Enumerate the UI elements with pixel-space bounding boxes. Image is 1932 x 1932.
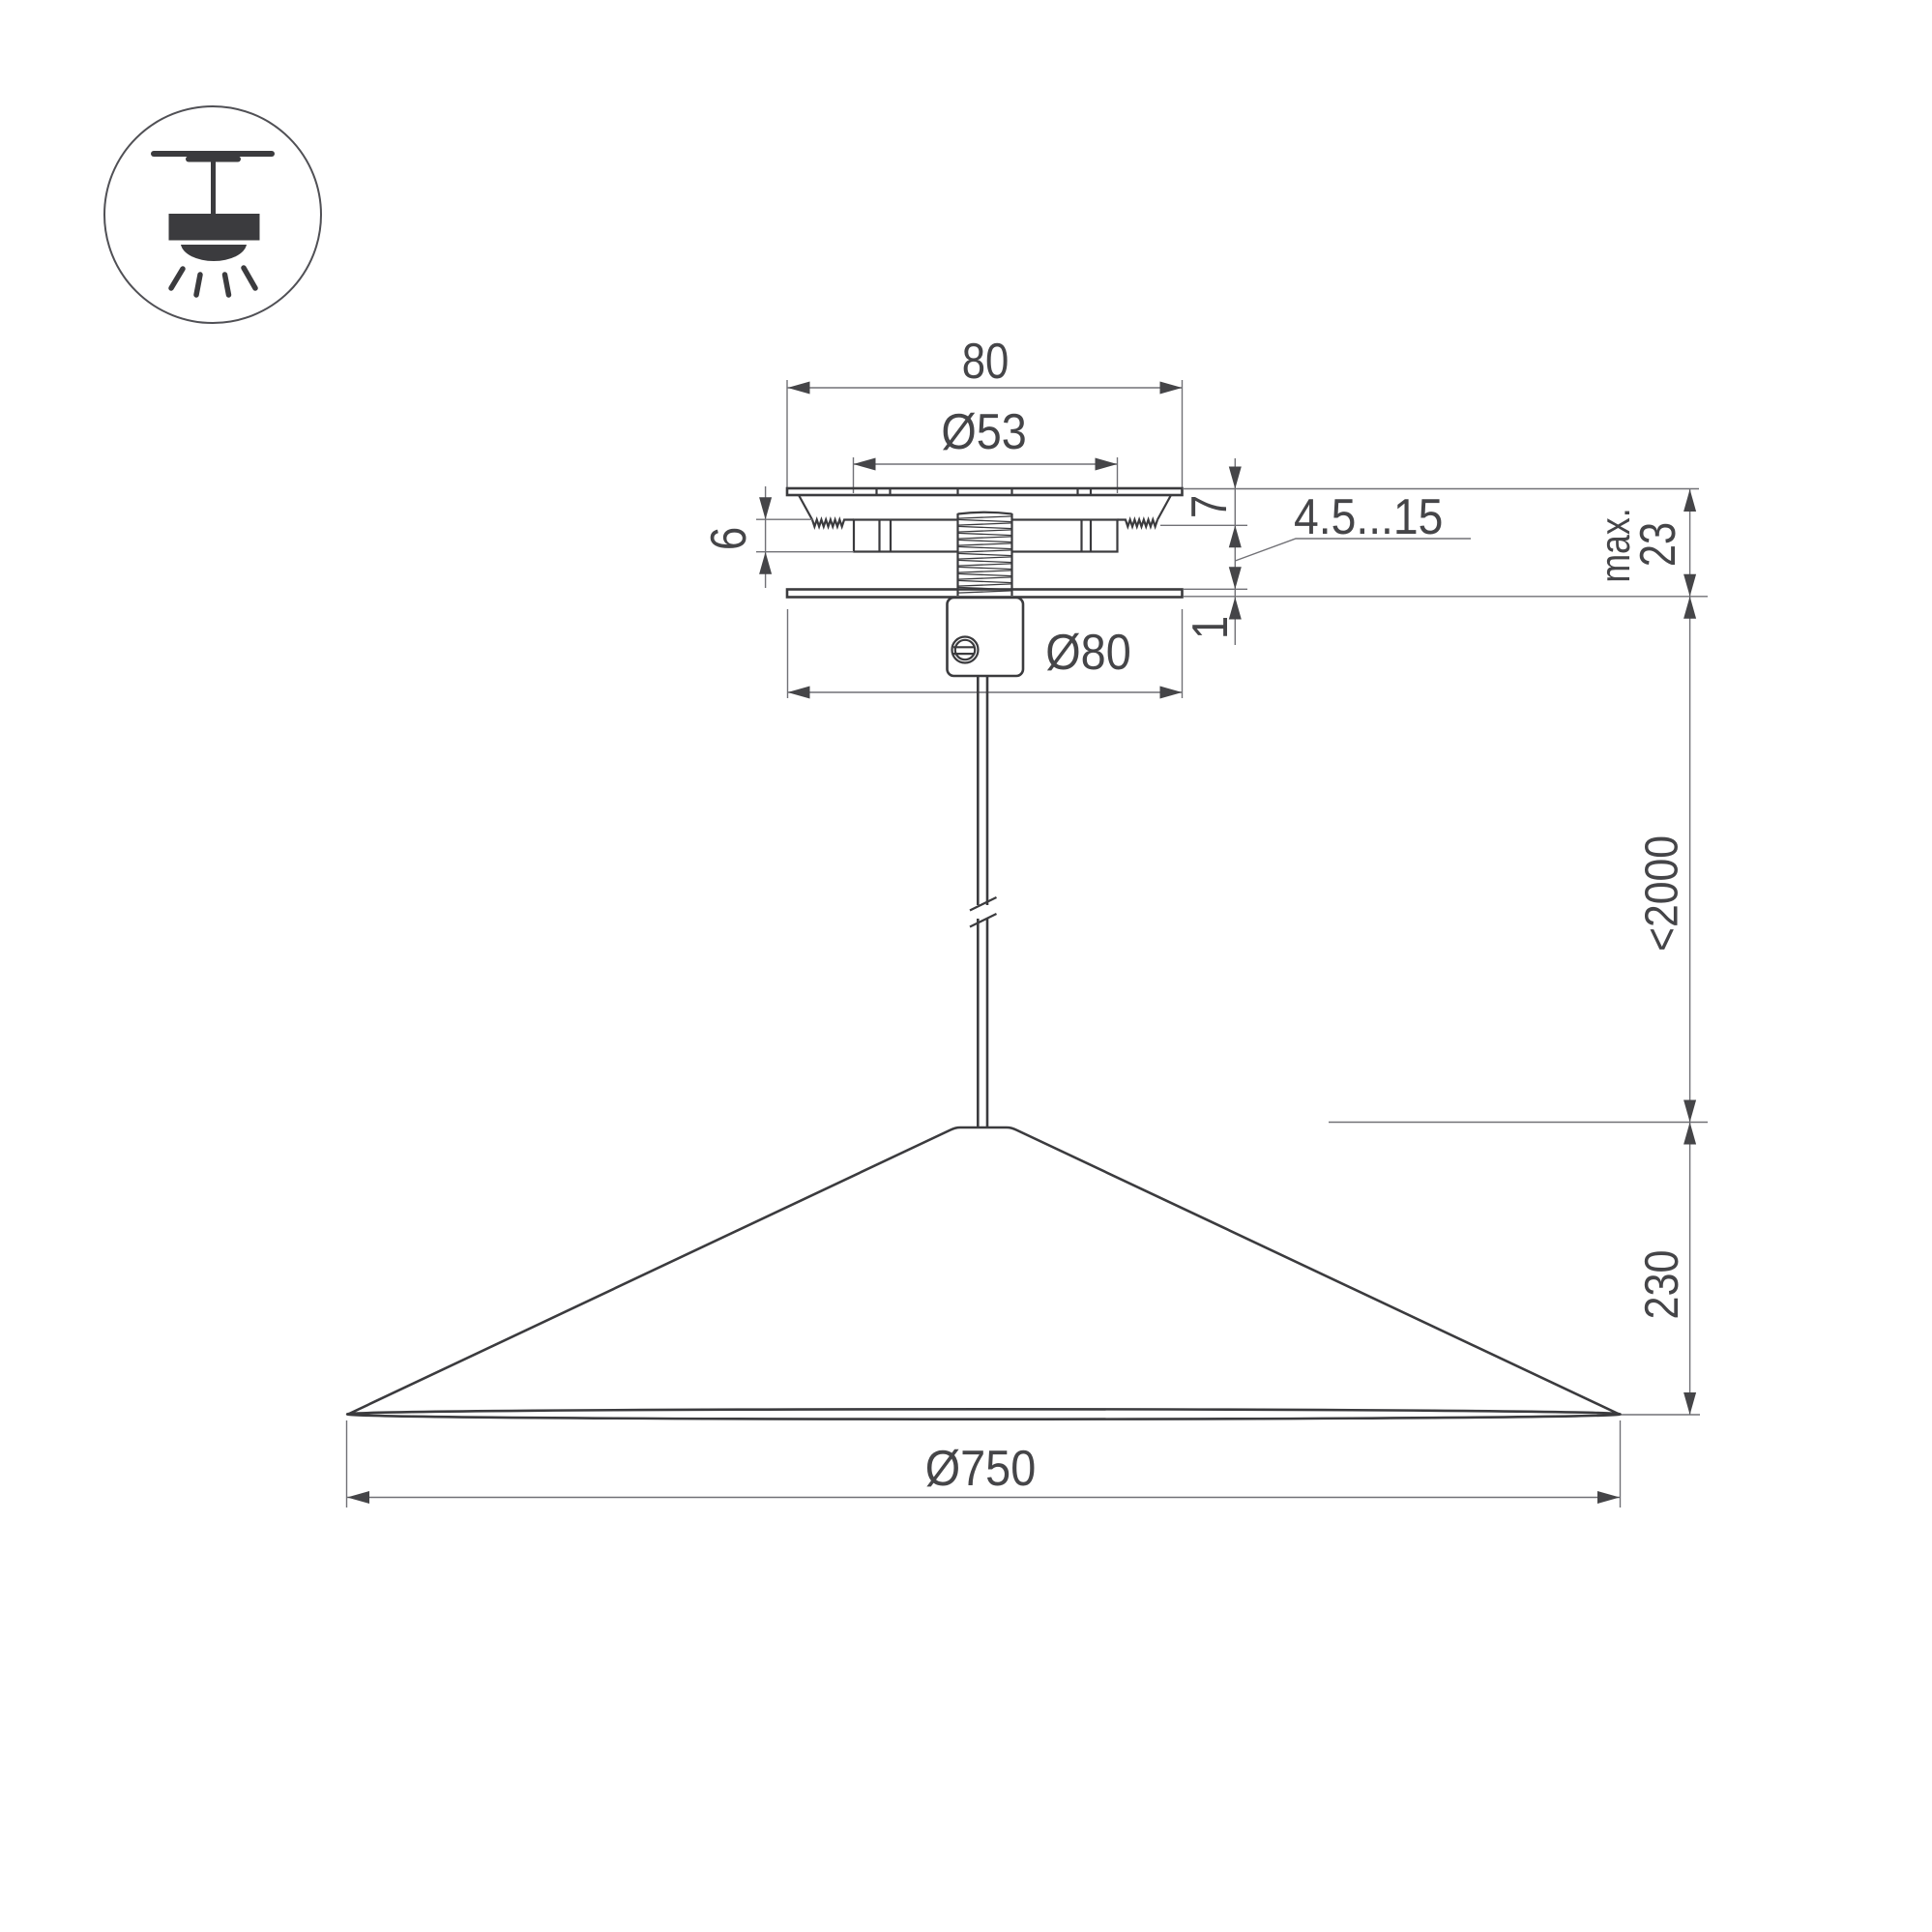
svg-text:<2000: <2000	[1637, 835, 1688, 951]
svg-text:Ø750: Ø750	[925, 1441, 1036, 1497]
svg-text:230: 230	[1636, 1250, 1688, 1320]
svg-text:1: 1	[1183, 616, 1239, 639]
svg-text:Ø53: Ø53	[941, 404, 1026, 460]
svg-text:Ø80: Ø80	[1045, 625, 1130, 681]
svg-text:80: 80	[962, 334, 1010, 390]
svg-text:6: 6	[701, 527, 757, 550]
svg-text:4.5...15: 4.5...15	[1294, 489, 1443, 545]
svg-text:23: 23	[1630, 522, 1686, 567]
svg-text:7: 7	[1182, 495, 1238, 518]
